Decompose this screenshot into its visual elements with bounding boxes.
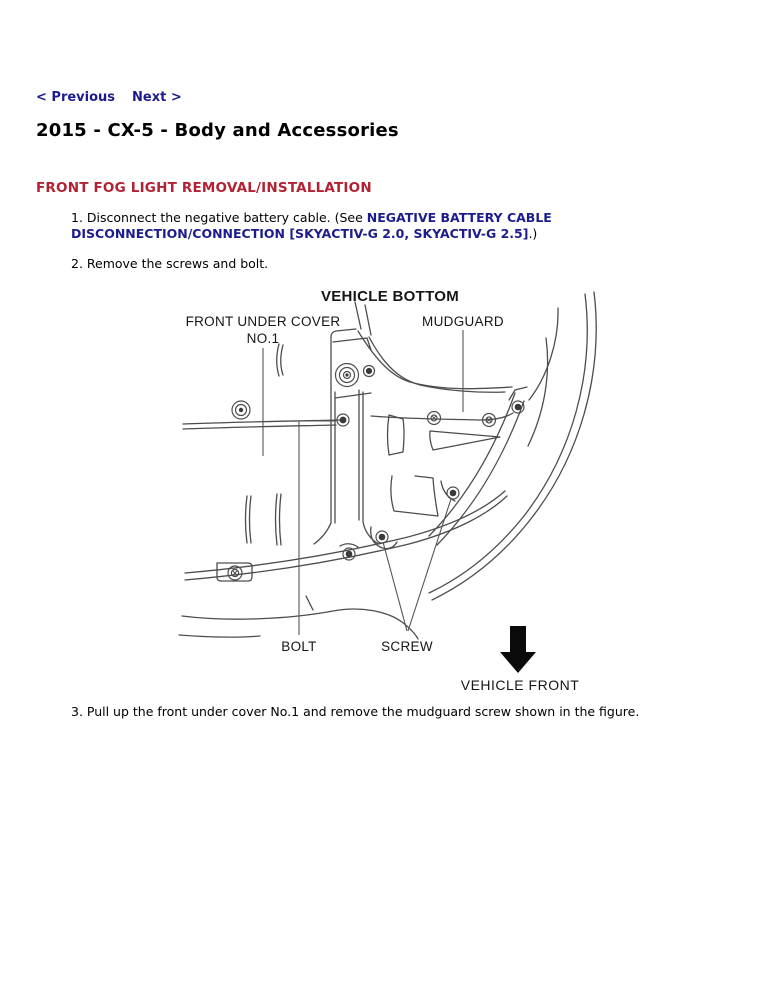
front-under-cover-label: FRONT UNDER COVER <box>186 314 341 329</box>
next-link[interactable]: Next > <box>132 90 182 105</box>
screw-icon <box>364 366 375 377</box>
step-1-text-after: .) <box>528 226 537 241</box>
vehicle-bottom-figure: VEHICLE BOTTOM FRONT UNDER COVER NO.1 MU… <box>175 280 615 700</box>
bolt-label: BOLT <box>281 639 316 654</box>
vehicle-front-arrow-icon <box>500 626 536 673</box>
clip-icon <box>336 364 359 387</box>
step-1: 1. Disconnect the negative battery cable… <box>71 210 716 242</box>
vehicle-bottom-diagram: VEHICLE BOTTOM FRONT UNDER COVER NO.1 MU… <box>175 280 615 700</box>
previous-link[interactable]: < Previous <box>36 90 115 105</box>
screw-icon <box>428 412 441 425</box>
step-2: 2. Remove the screws and bolt. <box>71 256 716 272</box>
pager-nav: < PreviousNext > <box>36 90 737 105</box>
front-under-cover-no1-label: NO.1 <box>247 331 280 346</box>
screw-leader-line <box>408 499 451 631</box>
bumper-lower-edge <box>179 491 507 639</box>
figure-title: VEHICLE BOTTOM <box>321 288 459 305</box>
fasteners <box>228 364 524 581</box>
screw-icon <box>376 531 388 543</box>
vehicle-front-label: VEHICLE FRONT <box>461 677 580 693</box>
step-3: 3. Pull up the front under cover No.1 an… <box>71 704 716 720</box>
manual-page: < PreviousNext > 2015 - CX-5 - Body and … <box>0 0 773 720</box>
mudguard-label: MUDGUARD <box>422 314 504 329</box>
section-heading: FRONT FOG LIGHT REMOVAL/INSTALLATION <box>36 180 737 196</box>
clip-icon <box>232 401 250 419</box>
underbody-line-art <box>179 292 596 639</box>
screw-label: SCREW <box>381 639 433 654</box>
page-title: 2015 - CX-5 - Body and Accessories <box>36 120 737 141</box>
step-1-text: 1. Disconnect the negative battery cable… <box>71 210 367 225</box>
front-under-cover-panel <box>183 329 356 545</box>
screw-icon <box>447 487 459 499</box>
